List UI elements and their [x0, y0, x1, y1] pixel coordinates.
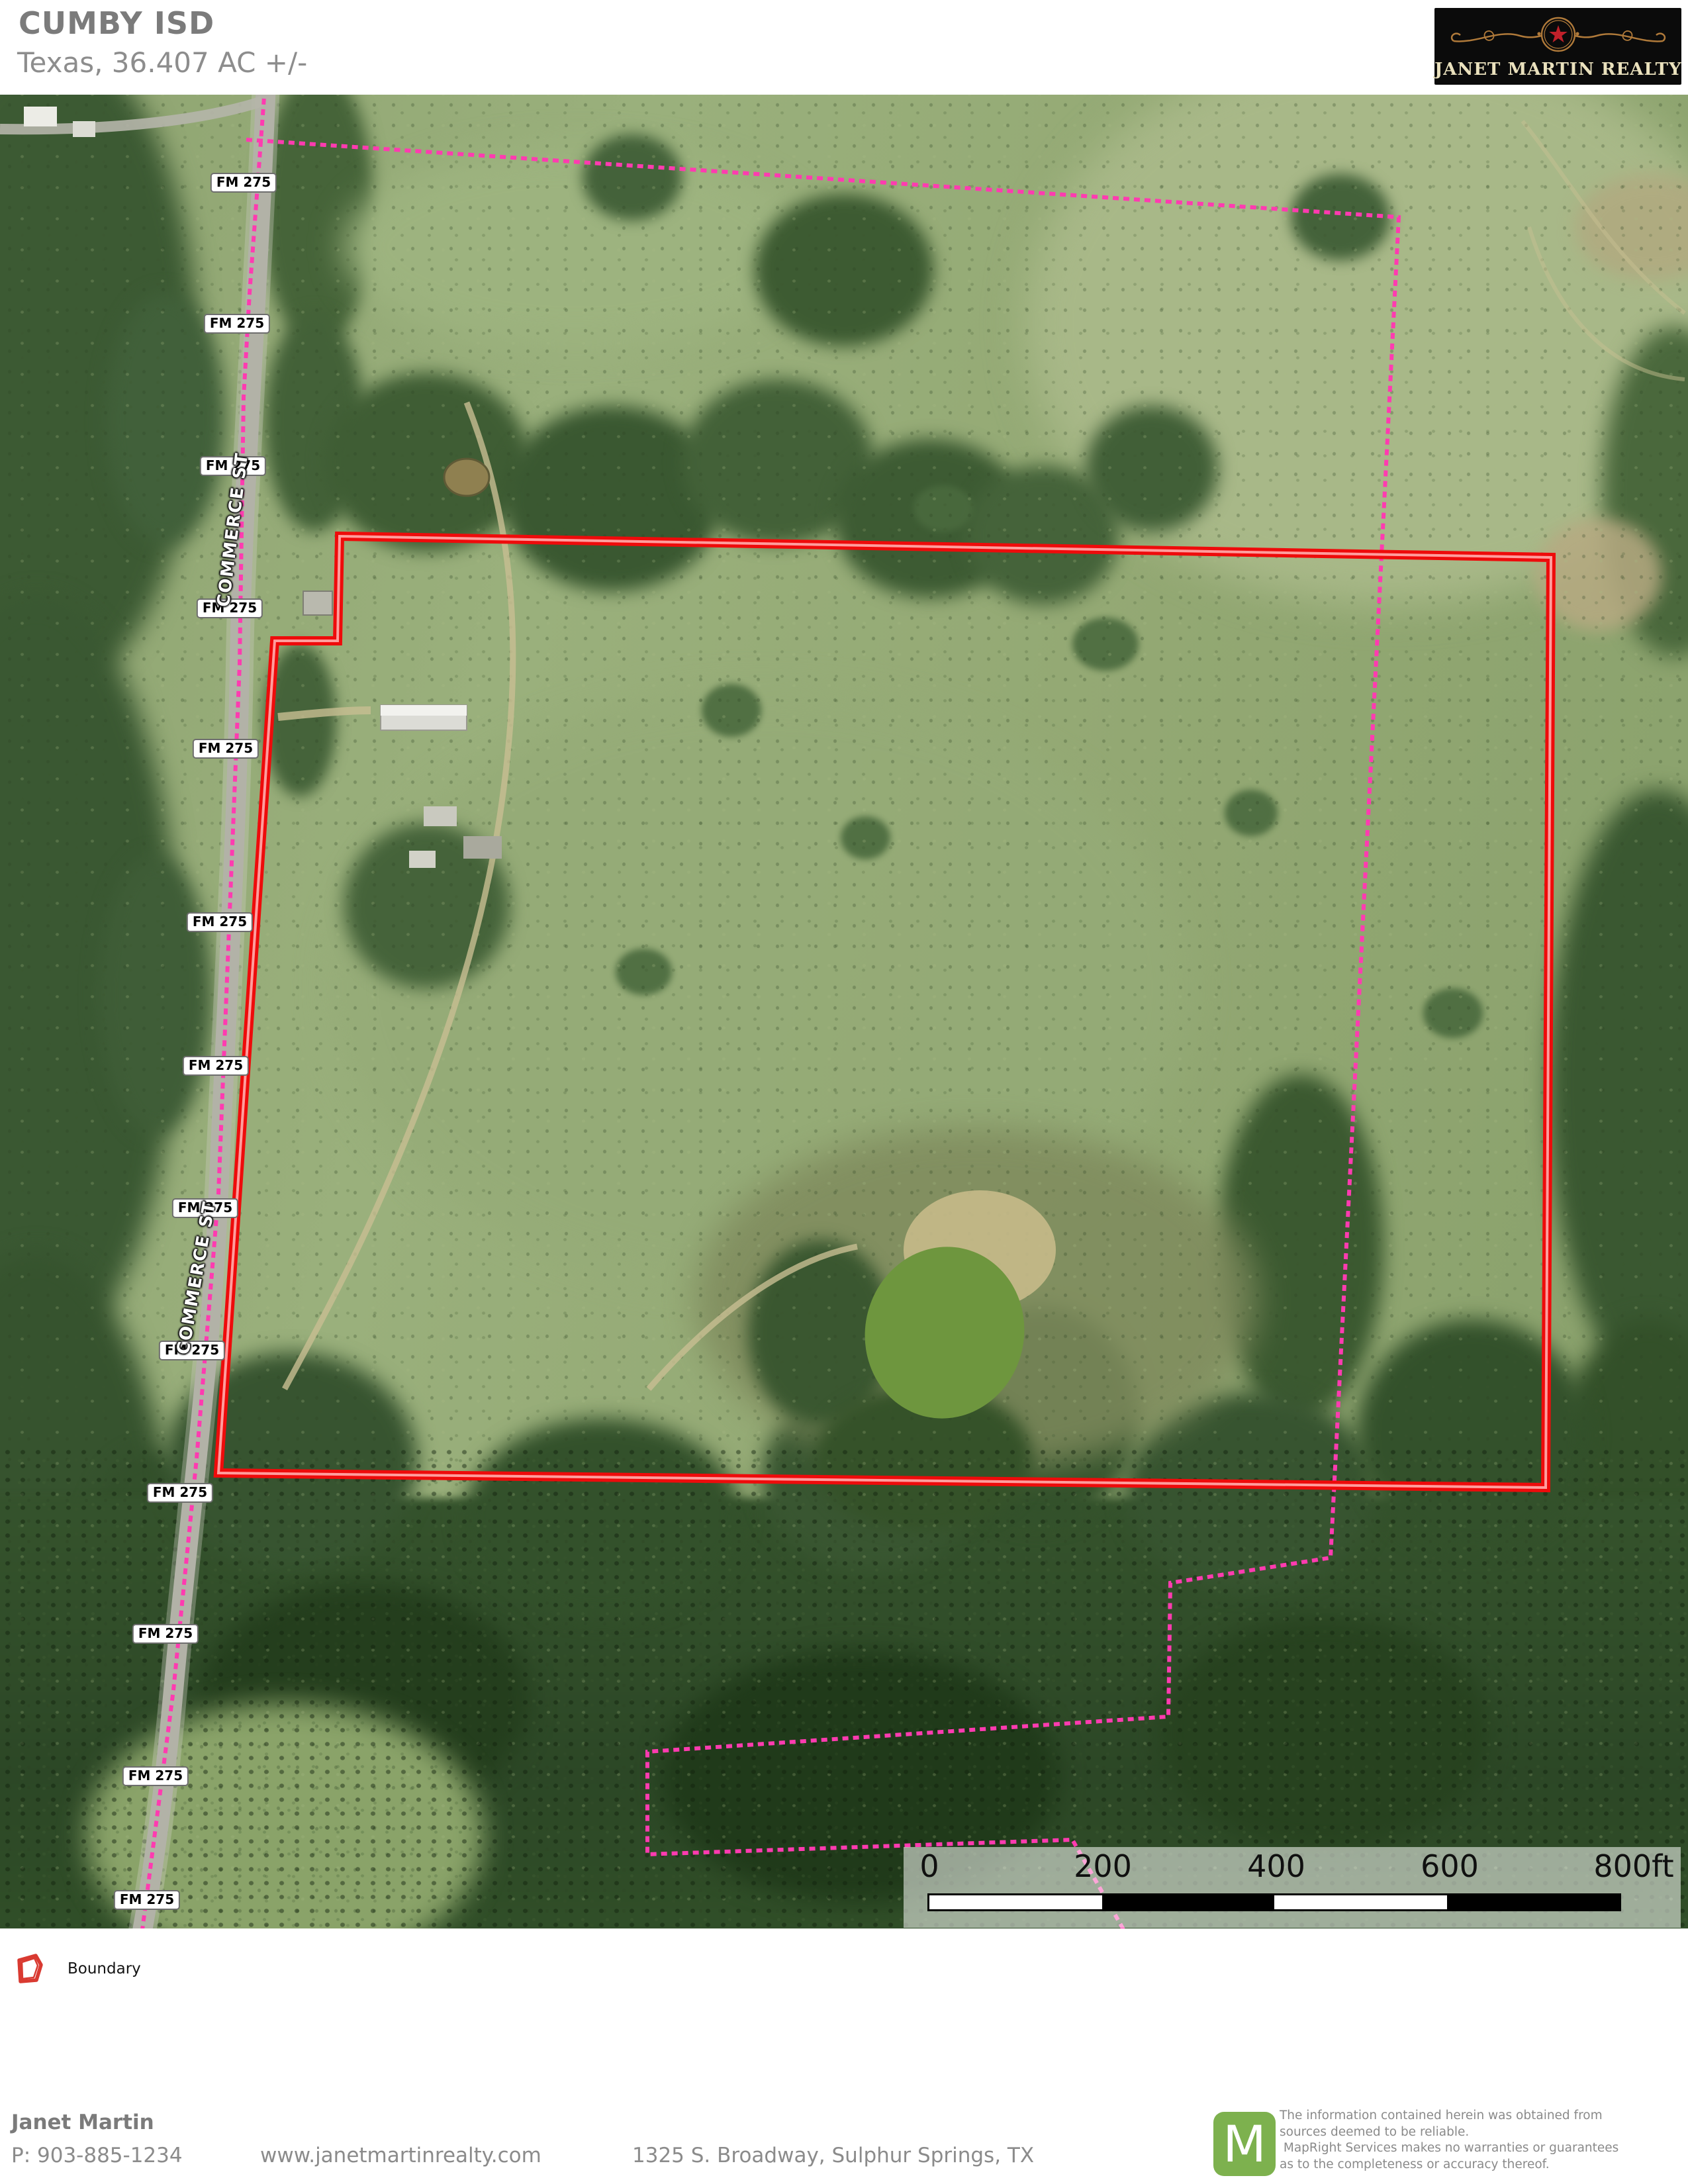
road-label-pill: FM 275 — [187, 912, 253, 932]
brand-logo: ★ JANET MARTIN REALTY — [1434, 8, 1681, 85]
agent-phone: P: 903-885-1234 — [11, 2144, 183, 2167]
road-label-pill: FM 275 — [193, 739, 259, 759]
mapright-m-letter: M — [1223, 2119, 1266, 2169]
scale-tick: 200 — [1074, 1848, 1132, 1884]
agent-name: Janet Martin — [11, 2111, 154, 2134]
flourish-icon: ★ — [1446, 9, 1671, 58]
disclaimer-line: The information contained herein was obt… — [1280, 2108, 1687, 2124]
map-export-page: CUMBY ISD Texas, 36.407 AC +/- ★ JANET — [0, 0, 1688, 2184]
disclaimer-line: as to the completeness or accuracy there… — [1280, 2157, 1687, 2173]
trail-path — [285, 403, 513, 1389]
road-label-pill: FM 275 — [132, 1624, 199, 1644]
brand-name: JANET MARTIN REALTY — [1434, 60, 1681, 79]
boundary-legend-icon — [15, 1952, 45, 1985]
scale-tick: 0 — [919, 1848, 939, 1884]
road-label-pill: FM 275 — [122, 1766, 189, 1786]
road-label-pill: FM 275 — [147, 1483, 213, 1503]
agent-website[interactable]: www.janetmartinrealty.com — [260, 2144, 541, 2167]
page-subtitle: Texas, 36.407 AC +/- — [17, 46, 307, 79]
small-pond — [444, 459, 489, 496]
disclaimer-line: MapRight Services makes no warranties or… — [1280, 2140, 1687, 2157]
road-label-pill: FM 275 — [114, 1890, 180, 1910]
legend: Boundary — [15, 1949, 141, 1989]
page-title: CUMBY ISD — [19, 5, 214, 41]
mapright-logo: M — [1213, 2112, 1276, 2176]
header: CUMBY ISD Texas, 36.407 AC +/- ★ JANET — [0, 0, 1688, 95]
scale-tick: 800ft — [1593, 1848, 1673, 1884]
road-label-pill: FM 275 — [183, 1056, 249, 1076]
road-label-pill: FM 275 — [204, 314, 270, 334]
road-label-pill: FM 275 — [211, 173, 277, 193]
star-icon: ★ — [1547, 21, 1568, 48]
scale-bar: 0 200 400 600 800ft — [904, 1847, 1681, 1928]
agent-address: 1325 S. Broadway, Sulphur Springs, TX — [632, 2144, 1034, 2167]
scale-tick: 600 — [1421, 1848, 1479, 1884]
parcel-dashed-line — [246, 140, 1399, 1928]
footer: Janet Martin P: 903-885-1234 www.janetma… — [0, 2085, 1688, 2184]
map-canvas: FM 275 FM 275 FM 275 FM 275 FM 275 FM 27… — [0, 95, 1688, 1928]
scale-bar-segments — [927, 1893, 1621, 1911]
scale-tick: 400 — [1247, 1848, 1305, 1884]
boundary-legend-label: Boundary — [68, 1960, 141, 1977]
disclaimer: The information contained herein was obt… — [1280, 2108, 1687, 2173]
disclaimer-line: sources deemed to be reliable. — [1280, 2124, 1687, 2141]
map-vector-overlay — [0, 95, 1688, 1928]
